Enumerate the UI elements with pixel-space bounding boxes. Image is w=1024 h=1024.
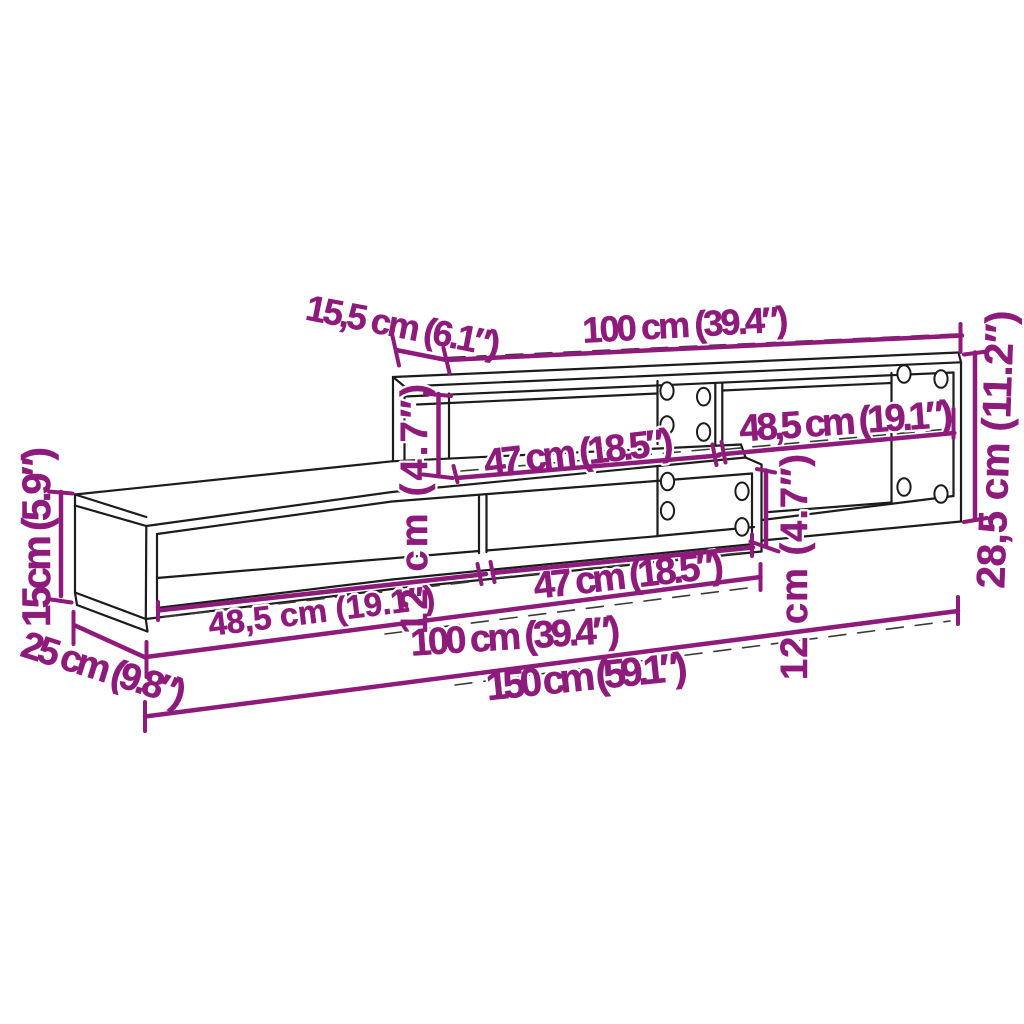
- svg-text:12 cm (4.7″): 12 cm (4.7″): [774, 454, 816, 680]
- svg-text:100 cm (39.4″): 100 cm (39.4″): [581, 298, 789, 350]
- svg-text:15cm (5.9″): 15cm (5.9″): [15, 447, 59, 627]
- svg-text:28,5 cm (11.2″): 28,5 cm (11.2″): [969, 310, 1023, 589]
